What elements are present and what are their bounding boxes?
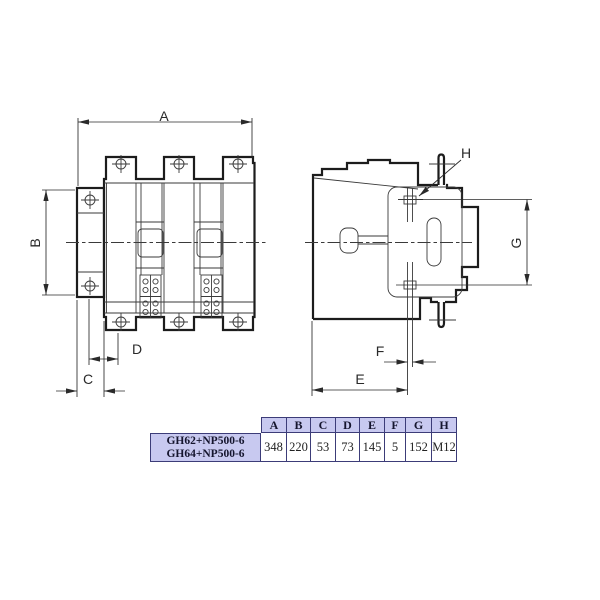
armature-shape [340, 228, 388, 253]
terminal-blade-top [439, 155, 445, 186]
dim-value-h: M12 [432, 433, 457, 462]
dim-label-g: G [508, 238, 524, 249]
side-outline [313, 160, 478, 319]
model-name-line2: GH64+NP500-6 [166, 448, 244, 461]
dimension-c: C [56, 300, 125, 397]
column-header: A [261, 417, 287, 433]
screw-symbol [112, 313, 130, 331]
dim-label-a: A [159, 108, 169, 124]
technical-drawing-page: A B C D E F G H [0, 0, 600, 600]
side-view [305, 155, 478, 328]
dim-value-c: 53 [311, 433, 336, 462]
dim-label-b: B [27, 238, 43, 247]
dimension-d: D [89, 299, 142, 365]
body-structure-lines [104, 183, 254, 313]
dim-value-g: 152 [406, 433, 432, 462]
dim-value-d: 73 [336, 433, 360, 462]
plate-hub [427, 218, 441, 266]
aux-contact-block-right [201, 275, 222, 318]
dim-value-f: 5 [385, 433, 406, 462]
dimension-e: E [312, 321, 408, 396]
dimension-table: A B C D E F G H GH62+NP500-6 GH64+NP500-… [150, 417, 457, 462]
column-header: C [311, 417, 336, 433]
column-header: D [336, 417, 360, 433]
front-view [66, 155, 268, 331]
dim-label-c: C [83, 371, 93, 387]
mounting-bolt-top [404, 188, 416, 222]
terminal-blade-bottom [439, 302, 445, 327]
column-header: H [432, 417, 457, 433]
dim-label-f: F [376, 343, 385, 359]
table-spacer [150, 417, 261, 433]
screw-symbol [81, 277, 99, 295]
model-name-cell: GH62+NP500-6 GH64+NP500-6 [150, 433, 261, 462]
dim-value-a: 348 [261, 433, 287, 462]
dim-label-e: E [355, 371, 364, 387]
column-header: G [406, 417, 432, 433]
dim-label-h: H [461, 145, 471, 161]
dimension-f: F [376, 327, 436, 367]
dim-value-b: 220 [287, 433, 311, 462]
model-name-line1: GH62+NP500-6 [166, 435, 244, 448]
column-header: F [385, 417, 406, 433]
mounting-bolt-bottom [404, 262, 416, 327]
screw-symbol [229, 313, 247, 331]
dim-label-d: D [132, 341, 142, 357]
screw-symbol [81, 191, 99, 209]
dim-value-e: 145 [360, 433, 385, 462]
column-header: E [360, 417, 385, 433]
aux-contact-block-left [140, 275, 161, 318]
mounting-plate-side [388, 187, 462, 297]
column-header: B [287, 417, 311, 433]
contactor-dimension-drawing: A B C D E F G H [0, 0, 600, 600]
screw-symbol [170, 313, 188, 331]
